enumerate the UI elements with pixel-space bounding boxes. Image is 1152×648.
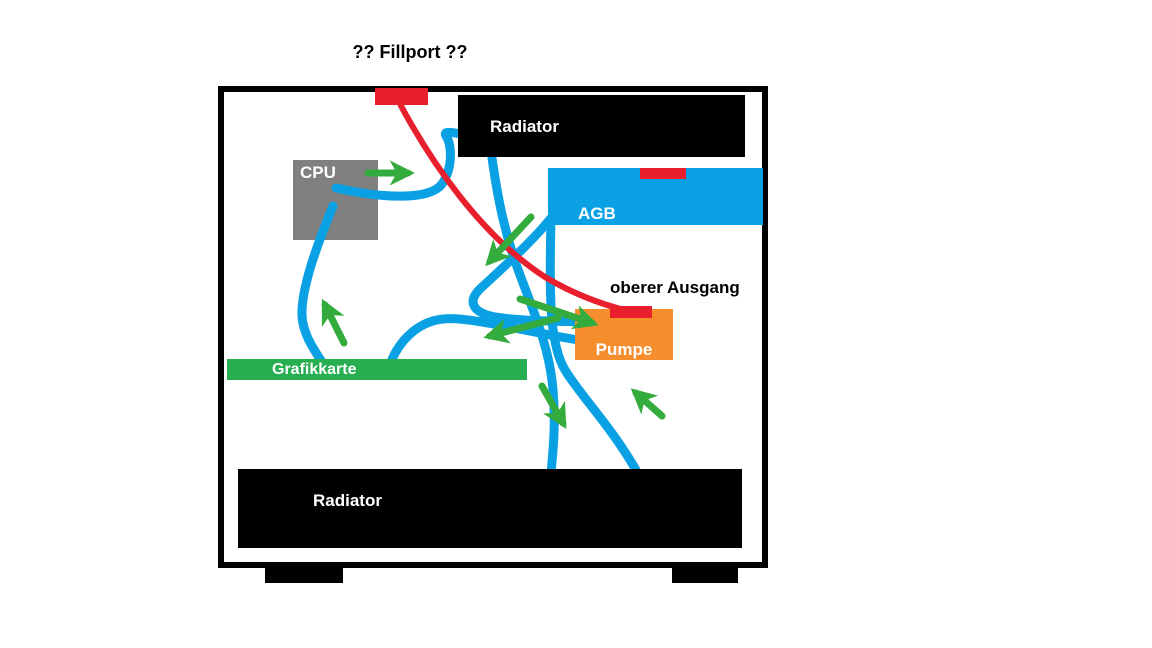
cpu-block: CPU	[293, 160, 378, 240]
fillport-marker	[375, 88, 428, 105]
agb-label: AGB	[578, 205, 616, 222]
bottom-radiator-block: Radiator	[238, 469, 742, 548]
gpu-label: Grafikkarte	[272, 362, 357, 378]
upper-output-label: oberer Ausgang	[610, 279, 740, 296]
pump-upper-output-port	[610, 306, 652, 318]
fillport-question-label: ?? Fillport ??	[350, 42, 470, 63]
case-foot-left	[265, 566, 343, 583]
pump-label: Pumpe	[596, 341, 653, 358]
pump-block: Pumpe	[575, 309, 673, 360]
gpu-block: Grafikkarte	[227, 359, 527, 380]
top-radiator-block: Radiator	[458, 95, 745, 157]
cpu-label: CPU	[300, 164, 336, 240]
top-radiator-label: Radiator	[490, 118, 559, 135]
cooling-loop-diagram: ?? Fillport ?? CPU Radiator AGB Pumpe Gr…	[0, 0, 1152, 648]
case-foot-right	[672, 566, 738, 583]
agb-reservoir-block: AGB	[548, 168, 763, 225]
agb-port-marker	[640, 168, 686, 179]
bottom-radiator-label: Radiator	[313, 492, 382, 509]
